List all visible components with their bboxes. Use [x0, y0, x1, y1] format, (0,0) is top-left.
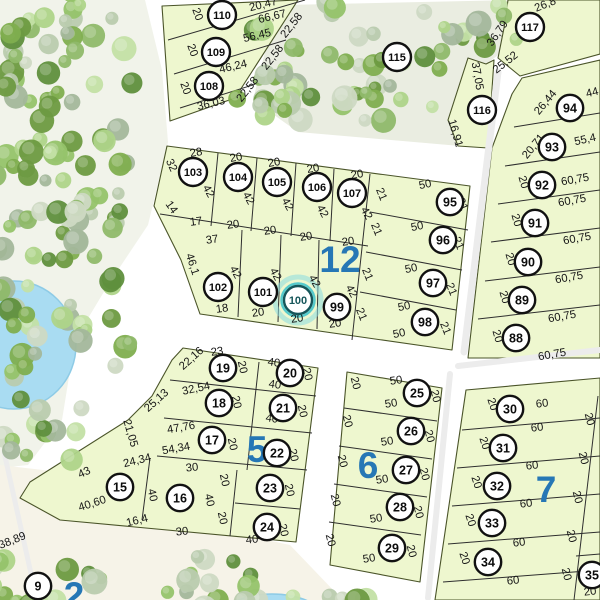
- plot-number: 26: [404, 424, 418, 438]
- tree-icon: [18, 306, 35, 323]
- plot-marker-91[interactable]: 91: [522, 210, 548, 236]
- tree-highlight: [14, 392, 23, 401]
- tree-icon: [176, 568, 200, 592]
- tree-highlight: [32, 401, 43, 412]
- tree-icon: [91, 187, 108, 204]
- dimension-label: 18: [215, 302, 229, 316]
- tree-icon: [359, 114, 372, 127]
- tree-icon: [416, 4, 432, 20]
- plot-number: 93: [545, 140, 559, 154]
- dimension-label: 50: [384, 397, 398, 411]
- tree-highlight: [360, 115, 366, 121]
- tree-icon: [38, 34, 58, 54]
- plot-marker-23[interactable]: 23: [257, 475, 283, 501]
- tree-icon: [39, 96, 61, 118]
- plot-marker-110[interactable]: 110: [208, 1, 236, 29]
- plot-number: 103: [184, 167, 202, 179]
- tree-icon: [25, 247, 43, 265]
- tree-highlight: [27, 249, 36, 258]
- tree-highlight: [111, 155, 123, 167]
- tree-icon: [277, 103, 292, 118]
- tree-icon: [63, 229, 88, 254]
- plot-number: 15: [113, 480, 127, 494]
- tree-highlight: [60, 56, 67, 63]
- plot-number: 31: [496, 441, 510, 455]
- plot-marker-29[interactable]: 29: [379, 535, 405, 561]
- tree-highlight: [385, 80, 392, 87]
- plot-number: 20: [283, 366, 297, 380]
- plot-number: 29: [385, 541, 399, 555]
- tree-highlight: [335, 88, 348, 101]
- plot-number: 34: [481, 555, 495, 569]
- tree-highlight: [8, 160, 16, 168]
- tree-icon: [161, 586, 174, 599]
- tree-highlight: [75, 0, 81, 6]
- block-label-2: 2: [64, 575, 85, 600]
- plot-marker-15[interactable]: 15: [107, 474, 133, 500]
- tree-icon: [321, 46, 339, 64]
- tree-highlight: [85, 571, 98, 584]
- dimension-label: 50: [418, 178, 433, 192]
- plot-marker-19[interactable]: 19: [210, 355, 236, 381]
- plot-marker-105[interactable]: 105: [263, 168, 291, 196]
- plot-marker-16[interactable]: 16: [167, 485, 193, 511]
- tree-highlight: [105, 269, 116, 280]
- tree-icon: [107, 358, 123, 374]
- tree-highlight: [96, 132, 107, 143]
- tree-highlight: [498, 9, 506, 17]
- tree-highlight: [64, 133, 75, 144]
- dimension-label: 20: [217, 473, 231, 488]
- plot-number: 19: [216, 361, 230, 375]
- plot-number: 108: [200, 81, 218, 93]
- plot-marker-101[interactable]: 101: [249, 278, 277, 306]
- tree-icon: [105, 12, 118, 25]
- tree-icon: [366, 27, 380, 41]
- plot-number: 109: [207, 47, 225, 59]
- plot-marker-103[interactable]: 103: [179, 158, 207, 186]
- dimension-label: 50: [397, 300, 412, 314]
- plot-marker-97[interactable]: 97: [420, 270, 446, 296]
- plot-number: 102: [209, 282, 227, 294]
- dimension-label: 30: [175, 525, 189, 538]
- tree-icon: [200, 573, 219, 592]
- tree-highlight: [63, 451, 74, 462]
- tree-highlight: [57, 174, 65, 182]
- plot-number: 18: [212, 396, 226, 410]
- dimension-label: 40: [202, 493, 216, 508]
- plot-number: 35: [585, 568, 599, 582]
- tree-icon: [8, 49, 22, 63]
- tree-highlight: [435, 45, 443, 53]
- plot-marker-99[interactable]: 99: [324, 294, 350, 320]
- tree-icon: [0, 23, 21, 44]
- tree-icon: [12, 391, 30, 409]
- tree-highlight: [22, 450, 29, 457]
- tree-icon: [3, 220, 16, 233]
- plot-marker-104[interactable]: 104: [224, 163, 252, 191]
- plot-number: 117: [521, 22, 539, 34]
- tree-icon: [68, 329, 92, 353]
- tree-highlight: [93, 189, 102, 198]
- tree-highlight: [6, 365, 14, 373]
- tree-highlight: [40, 64, 52, 76]
- tree-highlight: [287, 591, 294, 598]
- tree-icon: [275, 65, 294, 84]
- tree-icon: [81, 24, 105, 48]
- dimension-label: 17: [189, 215, 203, 229]
- tree-highlight: [34, 134, 42, 142]
- tree-icon: [75, 155, 96, 176]
- tree-highlight: [254, 99, 262, 107]
- tree-icon: [73, 400, 89, 416]
- dimension-label: 20: [225, 437, 239, 452]
- tree-icon: [111, 203, 128, 220]
- tree-highlight: [66, 95, 74, 103]
- tree-highlight: [395, 93, 403, 101]
- block-label-7: 7: [536, 469, 557, 510]
- plot-marker-116[interactable]: 116: [468, 96, 496, 124]
- tree-highlight: [62, 27, 69, 34]
- dimension-label: 20: [251, 306, 265, 320]
- dimension-label: 60: [535, 397, 549, 410]
- tree-highlight: [10, 50, 17, 57]
- plot-marker-88[interactable]: 88: [503, 325, 529, 351]
- tree-highlight: [43, 254, 50, 261]
- dimension-label: 60: [506, 574, 520, 587]
- tree-icon: [66, 422, 85, 441]
- tree-highlight: [368, 28, 375, 35]
- tree-icon: [16, 358, 33, 375]
- plot-marker-18[interactable]: 18: [206, 390, 232, 416]
- plot-number: 23: [263, 481, 277, 495]
- tree-icon: [64, 201, 86, 223]
- tree-highlight: [163, 587, 170, 594]
- tree-icon: [17, 160, 35, 178]
- plot-number: 97: [426, 276, 440, 290]
- tree-icon: [39, 174, 51, 186]
- plot-marker-117[interactable]: 117: [516, 13, 544, 41]
- tree-highlight: [354, 60, 362, 68]
- dimension-label: 50: [369, 512, 383, 526]
- tree-highlight: [66, 231, 79, 244]
- tree-highlight: [84, 26, 96, 38]
- tree-highlight: [19, 162, 28, 171]
- tree-icon: [191, 550, 204, 563]
- tree-highlight: [23, 281, 30, 288]
- tree-highlight: [428, 102, 434, 108]
- plot-number: 32: [490, 479, 504, 493]
- plot-marker-32[interactable]: 32: [484, 473, 510, 499]
- tree-icon: [60, 26, 74, 40]
- dimension-label: 60: [530, 421, 544, 434]
- plot-number: 16: [173, 491, 187, 505]
- block-label-12: 12: [319, 239, 360, 280]
- plot-number: 88: [509, 331, 523, 345]
- tree-highlight: [89, 250, 97, 258]
- tree-icon: [337, 53, 354, 70]
- plot-marker-102[interactable]: 102: [204, 273, 232, 301]
- plot-marker-92[interactable]: 92: [529, 172, 555, 198]
- tree-icon: [102, 218, 123, 239]
- plot-marker-24[interactable]: 24: [254, 514, 280, 540]
- tree-highlight: [124, 337, 131, 344]
- plot-number: 116: [473, 105, 491, 117]
- tree-icon: [55, 172, 71, 188]
- tree-icon: [383, 79, 397, 93]
- plot-marker-93[interactable]: 93: [539, 134, 565, 160]
- tree-highlight: [277, 67, 286, 76]
- tree-highlight: [370, 83, 376, 89]
- tree-icon: [102, 267, 125, 290]
- tree-icon: [27, 326, 48, 347]
- tree-icon: [51, 307, 73, 329]
- tree-highlight: [434, 63, 442, 71]
- plot-marker-107[interactable]: 107: [338, 179, 366, 207]
- tree-icon: [466, 11, 492, 37]
- plot-marker-94[interactable]: 94: [557, 95, 583, 121]
- plot-marker-35[interactable]: 35: [579, 562, 600, 588]
- tree-icon: [432, 61, 448, 77]
- tree-highlight: [68, 43, 77, 52]
- dimension-label: 50: [404, 262, 419, 276]
- tree-highlight: [304, 90, 313, 99]
- dimension-label: 60: [519, 497, 533, 510]
- tree-icon: [21, 279, 34, 292]
- plot-marker-109[interactable]: 109: [202, 38, 230, 66]
- tree-icon: [102, 309, 121, 328]
- plot-marker-98[interactable]: 98: [412, 309, 438, 335]
- tree-highlight: [45, 147, 52, 154]
- plot-number: 27: [399, 463, 413, 477]
- plot-marker-22[interactable]: 22: [264, 440, 290, 466]
- plot-number: 115: [388, 52, 406, 64]
- tree-highlight: [57, 227, 64, 234]
- tree-highlight: [193, 551, 200, 558]
- tree-highlight: [110, 121, 121, 132]
- plot-number: 25: [410, 386, 424, 400]
- plot-number: 24: [260, 520, 274, 534]
- tree-highlight: [324, 590, 332, 598]
- plot-number: 107: [343, 188, 361, 200]
- tree-icon: [81, 569, 107, 595]
- plot-marker-95[interactable]: 95: [437, 189, 463, 215]
- tree-highlight: [37, 9, 47, 19]
- plot-marker-115[interactable]: 115: [383, 43, 411, 71]
- map-canvas: 20,4766,6756,4546,2436,0322,5822,5822,58…: [0, 0, 600, 600]
- plot-number: 95: [443, 195, 457, 209]
- tree-highlight: [22, 142, 34, 154]
- plot-marker-20[interactable]: 20: [277, 360, 303, 386]
- tree-icon: [35, 420, 52, 437]
- dimension-label: 50: [389, 374, 403, 388]
- tree-highlight: [49, 203, 61, 215]
- dimension-label: 50: [410, 220, 425, 234]
- tree-highlight: [339, 55, 347, 63]
- tree-icon: [414, 46, 435, 67]
- tree-highlight: [34, 204, 44, 214]
- tree-highlight: [105, 220, 115, 230]
- tree-highlight: [240, 577, 251, 588]
- plot-number: 101: [254, 287, 272, 299]
- tree-highlight: [41, 176, 47, 182]
- tree-highlight: [21, 212, 30, 221]
- dimension-label: 50: [362, 552, 376, 566]
- tree-icon: [29, 399, 51, 421]
- tree-highlight: [279, 104, 287, 112]
- tree-highlight: [3, 25, 13, 35]
- plot-number: 17: [205, 433, 219, 447]
- tree-icon: [59, 14, 72, 27]
- tree-highlight: [107, 13, 114, 20]
- tree-highlight: [469, 13, 482, 26]
- plot-marker-108[interactable]: 108: [195, 72, 223, 100]
- plot-number: 90: [521, 255, 535, 269]
- block-label-6: 6: [358, 445, 379, 486]
- plot-number: 100: [289, 295, 307, 307]
- plot-marker-9[interactable]: 9: [25, 573, 51, 599]
- plot-marker-33[interactable]: 33: [479, 510, 505, 536]
- dimension-label: 40: [145, 488, 159, 503]
- plot-marker-26[interactable]: 26: [398, 418, 424, 444]
- tree-icon: [28, 347, 42, 361]
- tree-highlight: [115, 39, 127, 51]
- tree-icon: [393, 92, 408, 107]
- tree-icon: [302, 88, 321, 107]
- tree-icon: [274, 89, 290, 105]
- plot-number: 9: [35, 579, 42, 593]
- tree-highlight: [440, 22, 446, 28]
- tree-highlight: [37, 422, 45, 430]
- dimension-label: 20: [215, 511, 229, 526]
- tree-highlight: [88, 77, 97, 86]
- tree-highlight: [511, 34, 518, 41]
- plot-number: 28: [393, 500, 407, 514]
- tree-highlight: [109, 359, 117, 367]
- dimension-label: 60: [512, 536, 526, 549]
- tree-highlight: [75, 402, 83, 410]
- plot-marker-30[interactable]: 30: [497, 396, 523, 422]
- plot-number: 106: [308, 182, 326, 194]
- tree-highlight: [417, 48, 428, 59]
- plot-marker-27[interactable]: 27: [393, 457, 419, 483]
- dimension-label: 37: [205, 233, 219, 247]
- tree-highlight: [18, 360, 27, 369]
- tree-icon: [64, 94, 81, 111]
- plot-marker-17[interactable]: 17: [199, 427, 225, 453]
- dimension-label: 20: [263, 224, 277, 238]
- plot-marker-89[interactable]: 89: [509, 287, 535, 313]
- tree-highlight: [78, 157, 88, 167]
- plot-marker-100[interactable]: 100: [284, 286, 312, 314]
- tree-highlight: [228, 556, 235, 563]
- tree-icon: [121, 72, 142, 93]
- plot-marker-28[interactable]: 28: [387, 494, 413, 520]
- tree-highlight: [104, 311, 113, 320]
- tree-icon: [252, 97, 268, 113]
- tree-highlight: [30, 348, 37, 355]
- tree-icon: [20, 449, 33, 462]
- tree-highlight: [4, 443, 13, 452]
- tree-icon: [37, 61, 60, 84]
- plot-marker-25[interactable]: 25: [404, 380, 430, 406]
- plot-number: 99: [330, 300, 344, 314]
- tree-highlight: [71, 331, 83, 343]
- tree-highlight: [13, 345, 26, 358]
- plot-number: 91: [528, 216, 542, 230]
- tree-highlight: [202, 575, 212, 585]
- plot-number: 92: [535, 178, 549, 192]
- tree-icon: [112, 187, 125, 200]
- plot-number: 105: [268, 177, 286, 189]
- tree-highlight: [7, 434, 15, 442]
- tree-icon: [438, 21, 450, 33]
- dimension-label: 20: [299, 230, 313, 244]
- plot-number: 89: [515, 293, 529, 307]
- tree-icon: [360, 87, 372, 99]
- tree-icon: [86, 76, 104, 94]
- dimension-label: 30: [185, 461, 199, 474]
- tree-highlight: [42, 98, 53, 109]
- tree-highlight: [53, 87, 60, 94]
- plot-marker-31[interactable]: 31: [490, 435, 516, 461]
- tree-highlight: [41, 36, 51, 46]
- tree-highlight: [113, 205, 121, 213]
- tree-highlight: [67, 203, 78, 214]
- tree-icon: [42, 252, 57, 267]
- plot-marker-21[interactable]: 21: [270, 395, 296, 421]
- plot-number: 21: [276, 401, 290, 415]
- plot-map-svg: 20,4766,6756,4546,2436,0322,5822,5822,58…: [0, 0, 600, 600]
- tree-icon: [122, 336, 137, 351]
- tree-highlight: [351, 29, 361, 39]
- tree-highlight: [58, 252, 67, 261]
- tree-highlight: [418, 6, 426, 14]
- tree-icon: [433, 43, 450, 60]
- plot-marker-96[interactable]: 96: [430, 227, 456, 253]
- tree-icon: [2, 441, 20, 459]
- tree-icon: [56, 250, 74, 268]
- tree-highlight: [8, 319, 16, 327]
- plot-number: 104: [229, 172, 248, 184]
- tree-icon: [426, 100, 439, 113]
- tree-icon: [226, 554, 240, 568]
- tree-highlight: [29, 328, 39, 338]
- plot-marker-106[interactable]: 106: [303, 173, 331, 201]
- plot-number: 22: [270, 446, 284, 460]
- tree-highlight: [179, 571, 191, 583]
- tree-highlight: [69, 424, 79, 434]
- tree-highlight: [54, 309, 65, 320]
- tree-icon: [371, 108, 396, 133]
- plot-marker-90[interactable]: 90: [515, 249, 541, 275]
- tree-highlight: [20, 308, 28, 316]
- tree-highlight: [124, 75, 135, 86]
- dimension-label: 20: [226, 218, 240, 232]
- plot-number: 98: [418, 315, 432, 329]
- tree-icon: [34, 7, 55, 28]
- tree-highlight: [276, 90, 284, 98]
- plot-marker-34[interactable]: 34: [475, 549, 501, 575]
- tree-icon: [87, 248, 103, 264]
- tree-highlight: [61, 16, 68, 23]
- plot-number: 30: [503, 402, 517, 416]
- tree-highlight: [59, 560, 71, 572]
- plot-number: 110: [213, 10, 231, 22]
- tree-icon: [109, 153, 132, 176]
- plot-number: 96: [436, 233, 450, 247]
- tree-highlight: [1, 300, 13, 312]
